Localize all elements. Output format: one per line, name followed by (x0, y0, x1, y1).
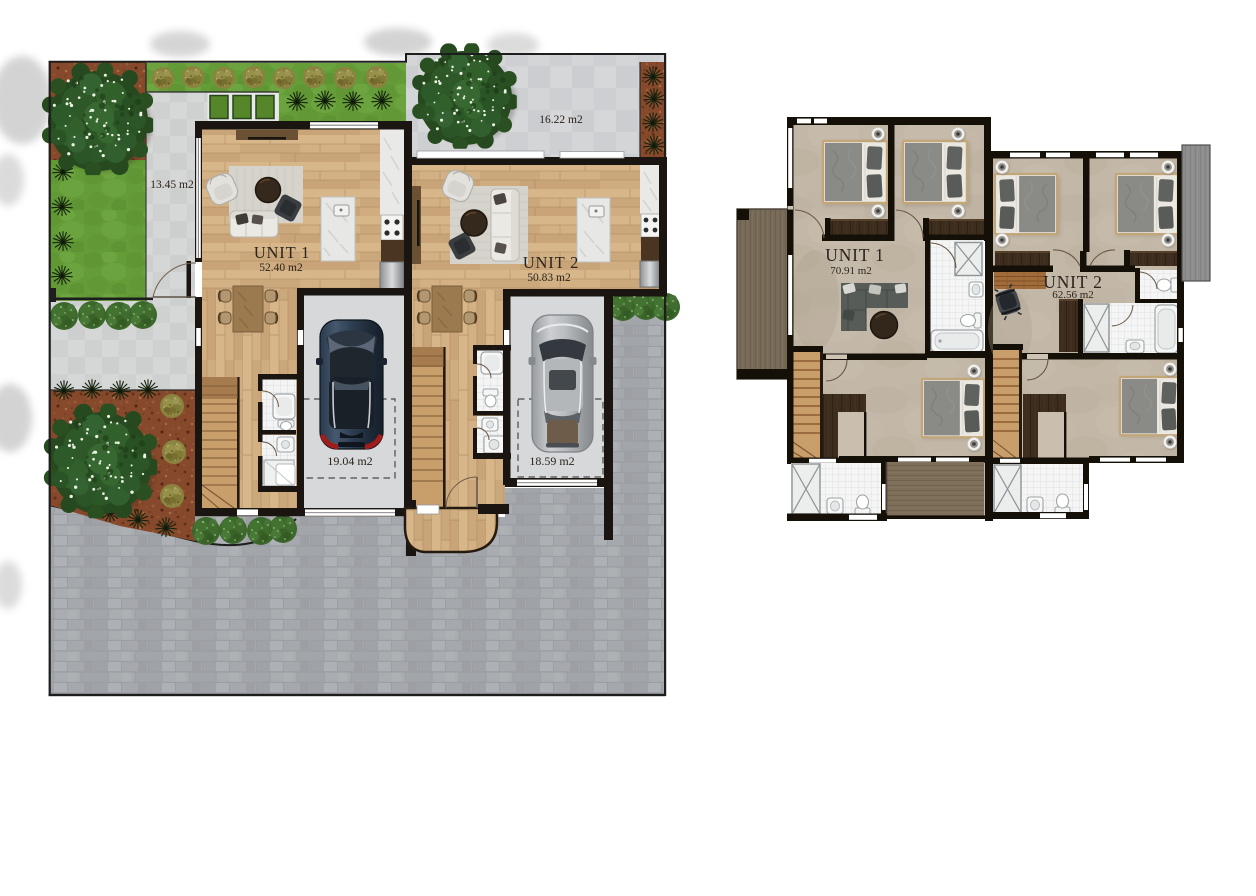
svg-text:UNIT 1: UNIT 1 (254, 243, 310, 262)
svg-text:UNIT 1: UNIT 1 (825, 245, 884, 265)
svg-text:52.40 m2: 52.40 m2 (259, 262, 303, 274)
svg-text:70.91 m2: 70.91 m2 (830, 265, 872, 277)
svg-text:19.04 m2: 19.04 m2 (327, 454, 372, 468)
svg-text:50.83 m2: 50.83 m2 (527, 272, 571, 284)
svg-text:18.59 m2: 18.59 m2 (529, 454, 574, 468)
svg-text:UNIT 2: UNIT 2 (523, 253, 579, 272)
svg-text:62.56 m2: 62.56 m2 (1052, 289, 1094, 301)
svg-text:16.22 m2: 16.22 m2 (539, 114, 583, 126)
svg-text:13.45 m2: 13.45 m2 (150, 179, 194, 191)
